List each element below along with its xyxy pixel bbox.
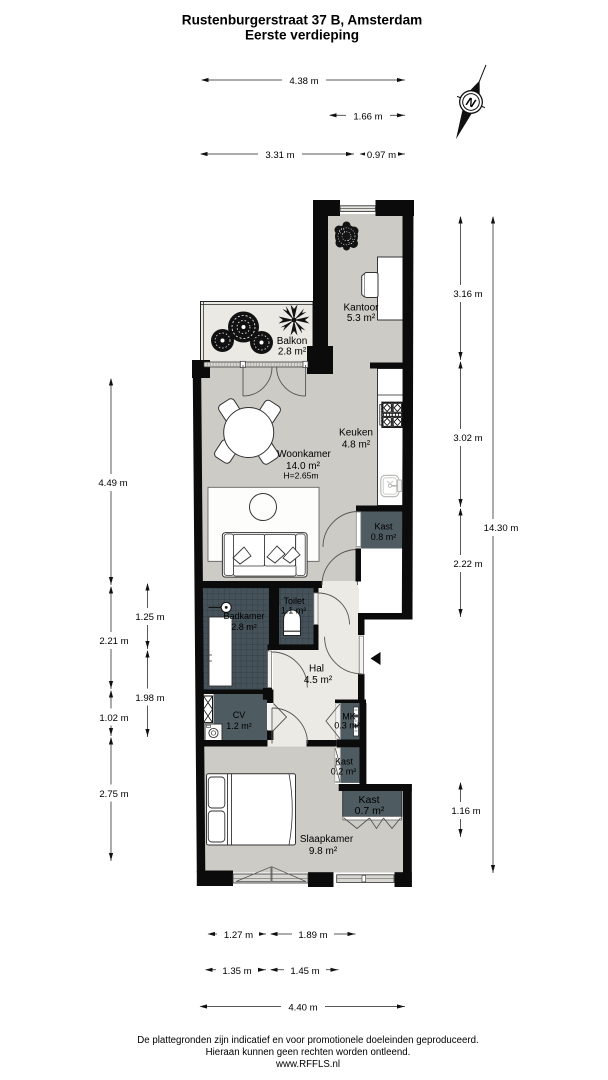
- svg-text:0.2 m²: 0.2 m²: [331, 767, 357, 777]
- svg-text:CV: CV: [233, 710, 246, 720]
- svg-text:Keuken: Keuken: [339, 428, 373, 439]
- svg-text:0.8 m²: 0.8 m²: [371, 532, 397, 542]
- svg-text:1.1 m²: 1.1 m²: [281, 606, 307, 616]
- svg-text:1.98 m: 1.98 m: [135, 693, 164, 704]
- svg-text:Toilet: Toilet: [283, 596, 305, 606]
- svg-text:Woonkamer: Woonkamer: [277, 449, 331, 460]
- svg-text:www.RFFLS.nl: www.RFFLS.nl: [275, 1059, 340, 1070]
- svg-text:4.40 m: 4.40 m: [288, 1003, 317, 1014]
- svg-text:2.75 m: 2.75 m: [99, 789, 128, 800]
- svg-text:3.02 m: 3.02 m: [453, 433, 482, 444]
- svg-text:1.89 m: 1.89 m: [298, 930, 327, 941]
- svg-text:Rustenburgerstraat 37 B, Amste: Rustenburgerstraat 37 B, Amsterdam: [182, 13, 422, 28]
- svg-text:1.66 m: 1.66 m: [353, 111, 382, 122]
- svg-text:4.38 m: 4.38 m: [289, 76, 318, 87]
- svg-text:0.3 m²: 0.3 m²: [334, 721, 360, 731]
- svg-text:Hal: Hal: [309, 664, 324, 675]
- svg-text:Balkon: Balkon: [277, 336, 308, 347]
- svg-text:De plattegronden zijn indicati: De plattegronden zijn indicatief en voor…: [137, 1035, 478, 1046]
- svg-text:Kast: Kast: [374, 522, 393, 532]
- svg-text:2.8 m²: 2.8 m²: [231, 622, 257, 632]
- svg-text:2.8 m²: 2.8 m²: [278, 347, 307, 358]
- svg-text:4.49 m: 4.49 m: [98, 478, 127, 489]
- svg-text:1.16 m: 1.16 m: [451, 806, 480, 817]
- svg-text:1.45 m: 1.45 m: [290, 966, 319, 977]
- svg-text:0.7 m²: 0.7 m²: [355, 805, 385, 817]
- svg-text:1.25 m: 1.25 m: [135, 612, 164, 623]
- svg-text:4.8 m²: 4.8 m²: [342, 440, 371, 451]
- svg-text:3.16 m: 3.16 m: [453, 289, 482, 300]
- svg-text:1.27 m: 1.27 m: [224, 930, 253, 941]
- svg-text:1.2 m²: 1.2 m²: [226, 721, 252, 731]
- svg-text:Eerste verdieping: Eerste verdieping: [245, 28, 359, 43]
- svg-text:Hieraan kunnen geen rechten wo: Hieraan kunnen geen rechten worden ontle…: [206, 1047, 411, 1058]
- svg-text:Slaapkamer: Slaapkamer: [300, 834, 354, 845]
- svg-text:0.97 m: 0.97 m: [367, 150, 396, 161]
- svg-text:Badkamer: Badkamer: [223, 611, 264, 621]
- svg-text:9.8 m²: 9.8 m²: [309, 846, 338, 857]
- svg-text:Kantoor: Kantoor: [343, 303, 379, 314]
- svg-text:Kast: Kast: [335, 757, 354, 767]
- svg-text:1.35 m: 1.35 m: [222, 966, 251, 977]
- svg-text:4.5 m²: 4.5 m²: [304, 675, 333, 686]
- svg-text:2.22 m: 2.22 m: [453, 559, 482, 570]
- svg-text:5.3 m²: 5.3 m²: [347, 313, 376, 324]
- svg-text:2.21 m: 2.21 m: [99, 636, 128, 647]
- svg-text:H=2.65m: H=2.65m: [283, 471, 318, 481]
- svg-text:1.02 m: 1.02 m: [99, 713, 128, 724]
- svg-text:14.30 m: 14.30 m: [484, 523, 519, 534]
- svg-text:3.31 m: 3.31 m: [265, 150, 294, 161]
